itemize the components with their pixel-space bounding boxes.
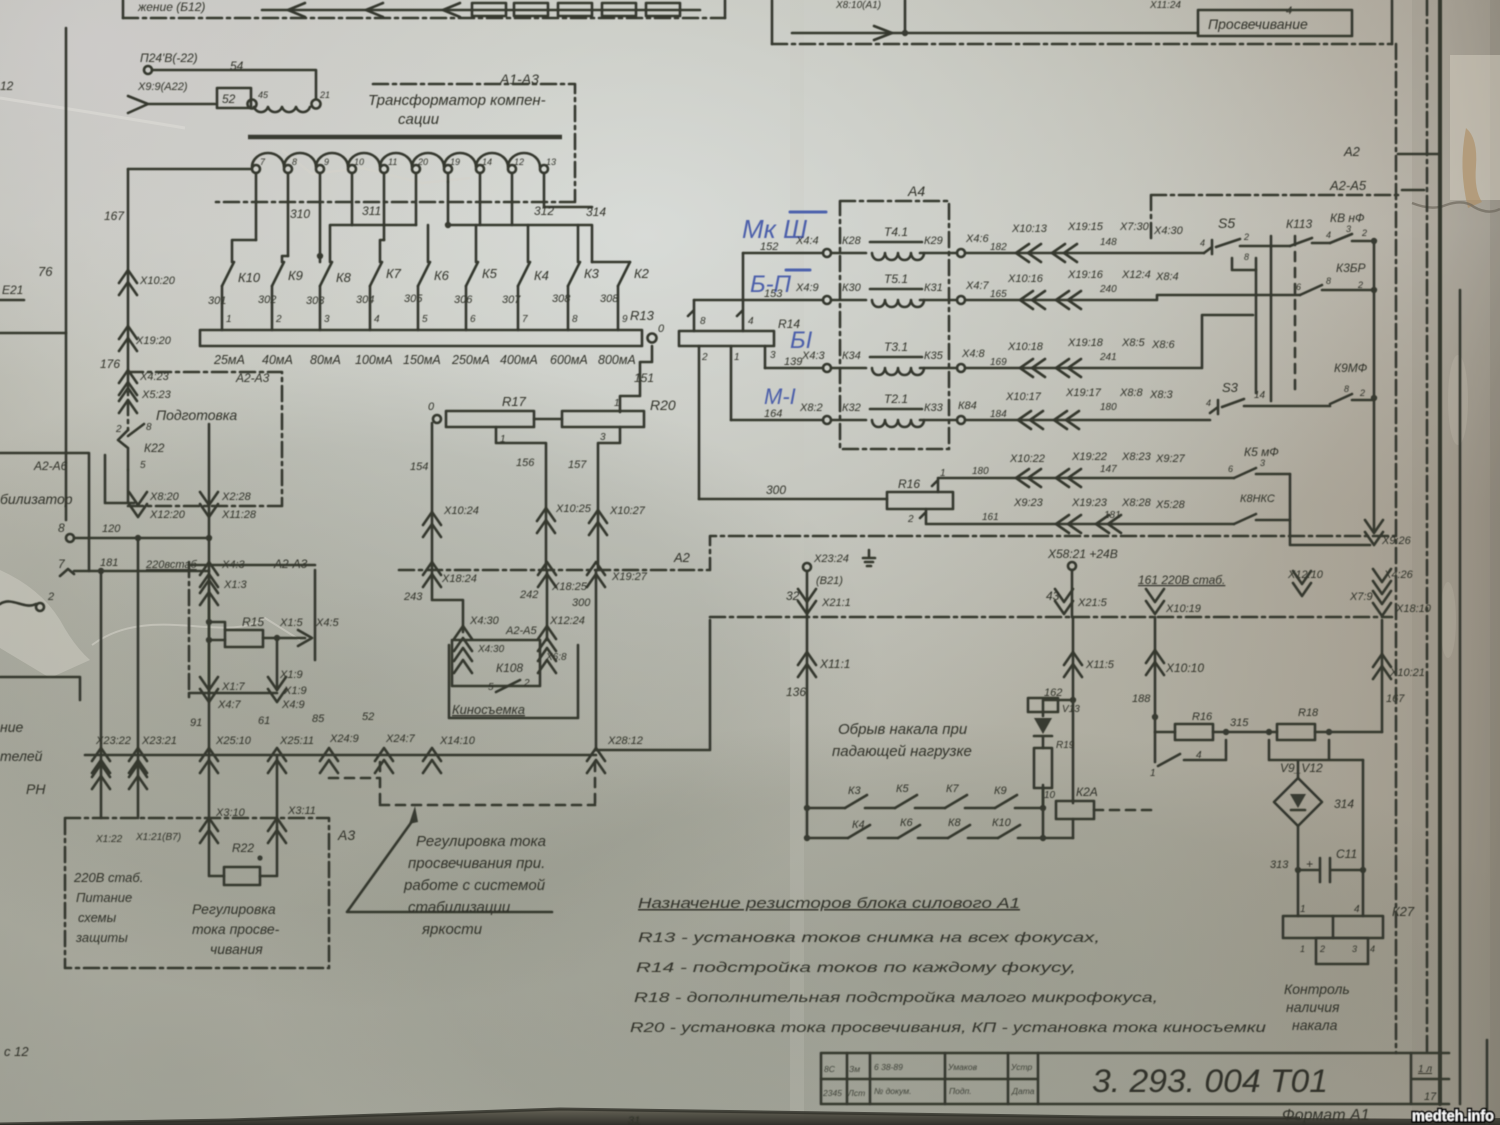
svg-text:Т4.1: Т4.1	[884, 225, 908, 239]
svg-text:Х19:23: Х19:23	[1071, 497, 1108, 509]
svg-text:А4: А4	[907, 183, 925, 199]
svg-text:52: 52	[362, 711, 374, 723]
svg-text:К5: К5	[896, 783, 909, 795]
svg-text:Х8:6: Х8:6	[1151, 339, 1176, 351]
svg-text:К30: К30	[842, 282, 862, 294]
svg-text:Х10:20: Х10:20	[139, 275, 176, 287]
svg-text:Х23:24: Х23:24	[813, 553, 849, 565]
svg-text:R19: R19	[1056, 740, 1075, 751]
svg-text:Х7:9: Х7:9	[1349, 591, 1373, 603]
svg-text:8: 8	[1244, 252, 1249, 262]
svg-text:V13: V13	[1062, 704, 1080, 715]
svg-text:14: 14	[482, 157, 492, 167]
svg-text:Х18:25: Х18:25	[551, 581, 588, 593]
svg-text:2: 2	[1243, 232, 1249, 242]
svg-text:8: 8	[292, 157, 297, 167]
svg-text:А2: А2	[1343, 144, 1361, 159]
svg-text:0: 0	[428, 401, 435, 413]
svg-text:5: 5	[140, 460, 146, 471]
svg-text:Х11:5: Х11:5	[1085, 659, 1115, 671]
svg-text:Х10:27: Х10:27	[609, 505, 646, 517]
svg-text:8: 8	[572, 314, 578, 325]
svg-text:Х8:10(А1): Х8:10(А1)	[835, 0, 881, 11]
svg-text:схемы: схемы	[78, 910, 117, 925]
svg-text:156: 156	[516, 457, 535, 469]
svg-text:8: 8	[58, 521, 65, 535]
svg-text:1: 1	[226, 314, 232, 325]
svg-text:К113: К113	[1286, 217, 1313, 231]
svg-text:4: 4	[1354, 904, 1360, 915]
svg-text:R13: R13	[630, 308, 655, 323]
svg-text:600мА: 600мА	[550, 353, 588, 367]
svg-text:Х1:7: Х1:7	[221, 681, 246, 693]
svg-text:31: 31	[628, 1115, 640, 1125]
svg-text:Питание: Питание	[76, 890, 132, 905]
svg-text:К3БР: К3БР	[1336, 261, 1366, 275]
svg-text:Х4:30: Х4:30	[1153, 225, 1184, 237]
svg-text:165: 165	[990, 289, 1007, 300]
svg-text:Х8:23: Х8:23	[1121, 451, 1152, 463]
svg-text:билизатор: билизатор	[0, 491, 73, 507]
svg-text:Х23:22: Х23:22	[95, 735, 131, 747]
svg-text:Х10:24: Х10:24	[443, 505, 479, 517]
svg-text:17: 17	[1424, 1091, 1437, 1103]
svg-text:Х1:5: Х1:5	[279, 617, 304, 629]
svg-text:Х8:5: Х8:5	[1121, 337, 1146, 349]
svg-text:Х11:24: Х11:24	[1149, 0, 1181, 11]
svg-text:4: 4	[1200, 238, 1205, 248]
svg-text:80мА: 80мА	[310, 353, 341, 367]
svg-text:К3: К3	[584, 266, 600, 281]
svg-text:V9_V12: V9_V12	[1280, 761, 1323, 775]
svg-text:3: 3	[1260, 458, 1265, 468]
svg-text:43: 43	[1046, 589, 1060, 603]
svg-text:К6: К6	[434, 268, 450, 283]
svg-text:Просвечивание: Просвечивание	[1208, 16, 1308, 32]
svg-text:157: 157	[568, 459, 587, 471]
svg-text:К108: К108	[496, 661, 523, 675]
svg-text:152: 152	[760, 241, 778, 253]
svg-text:Х19:17: Х19:17	[1065, 387, 1102, 399]
svg-text:К10: К10	[238, 270, 261, 285]
svg-text:3: 3	[1352, 944, 1357, 954]
svg-text:8С: 8С	[824, 1064, 836, 1074]
svg-text:4: 4	[748, 316, 754, 327]
svg-text:13: 13	[546, 157, 556, 167]
svg-text:Х11:1: Х11:1	[819, 657, 850, 671]
svg-text:П24'В(-22): П24'В(-22)	[140, 51, 198, 65]
svg-text:S3: S3	[1222, 380, 1239, 395]
svg-text:181: 181	[100, 557, 118, 569]
svg-text:241: 241	[1099, 352, 1117, 363]
svg-text:Х9:9(А22): Х9:9(А22)	[137, 81, 188, 93]
svg-text:150мА: 150мА	[403, 353, 441, 367]
svg-text:2: 2	[275, 314, 282, 325]
svg-text:167: 167	[104, 209, 125, 223]
svg-text:303: 303	[306, 295, 325, 307]
svg-text:Х10:22: Х10:22	[1009, 453, 1045, 465]
svg-text:2: 2	[1359, 388, 1365, 398]
svg-text:85: 85	[312, 713, 325, 725]
svg-text:Х1:9: Х1:9	[283, 685, 307, 697]
svg-text:8: 8	[700, 316, 706, 327]
svg-text:Х24:7: Х24:7	[385, 733, 416, 745]
svg-text:76: 76	[38, 264, 53, 279]
svg-text:2: 2	[115, 424, 122, 435]
svg-text:Регулировка тока: Регулировка тока	[416, 833, 546, 850]
svg-text:телей: телей	[0, 748, 43, 764]
svg-text:3: 3	[770, 350, 776, 361]
svg-text:А2-А5: А2-А5	[1329, 178, 1367, 193]
svg-text:154: 154	[410, 461, 428, 473]
svg-text:314: 314	[1334, 797, 1354, 811]
svg-text:Х19:22: Х19:22	[1071, 451, 1107, 463]
svg-text:2: 2	[1361, 228, 1367, 238]
svg-text:К9МФ: К9МФ	[1334, 361, 1368, 375]
svg-text:К34: К34	[842, 350, 861, 362]
svg-text:220В стаб.: 220В стаб.	[73, 870, 143, 885]
svg-text:К6: К6	[900, 817, 913, 829]
svg-text:182: 182	[990, 242, 1007, 253]
svg-text:313: 313	[1270, 859, 1289, 871]
svg-text:Обрыв накала при: Обрыв накала при	[838, 721, 968, 738]
svg-text:8: 8	[1326, 276, 1331, 286]
svg-text:100мА: 100мА	[355, 353, 393, 367]
svg-text:К2А: К2А	[1076, 785, 1098, 799]
svg-text:К5 мФ: К5 мФ	[1244, 445, 1279, 459]
svg-text:1 л: 1 л	[1418, 1064, 1432, 1075]
svg-text:25мА: 25мА	[213, 353, 245, 367]
svg-text:К32: К32	[842, 402, 861, 414]
svg-text:К8НКС: К8НКС	[1240, 493, 1275, 505]
svg-text:139: 139	[784, 356, 802, 368]
svg-text:Х4:7: Х4:7	[217, 699, 242, 711]
svg-text:Х4:30: Х4:30	[477, 644, 505, 655]
svg-text:R20 - установка тока просвеч: R20 - установка тока просвечивания, КП -…	[630, 1019, 1266, 1035]
svg-text:310: 310	[290, 207, 310, 221]
svg-text:тока просве-: тока просве-	[192, 921, 280, 937]
svg-text:181: 181	[1104, 510, 1121, 521]
svg-text:Х8:28: Х8:28	[1121, 497, 1152, 509]
svg-text:1: 1	[1300, 944, 1305, 954]
svg-text:К3: К3	[848, 785, 861, 797]
svg-text:Х14:10: Х14:10	[439, 735, 476, 747]
svg-text:40мА: 40мА	[262, 353, 293, 367]
svg-text:Х10:17: Х10:17	[1005, 391, 1042, 403]
svg-text:10: 10	[354, 157, 364, 167]
svg-text:91: 91	[190, 717, 202, 729]
svg-text:R18: R18	[1298, 707, 1319, 719]
svg-text:1: 1	[734, 352, 740, 363]
svg-text:Х18:24: Х18:24	[441, 573, 477, 585]
svg-text:314: 314	[586, 205, 606, 219]
svg-text:Х4:9: Х4:9	[795, 282, 819, 294]
svg-text:Х10:21: Х10:21	[1389, 667, 1425, 679]
svg-text:11: 11	[388, 157, 397, 167]
svg-text:311: 311	[362, 204, 381, 218]
svg-text:315: 315	[1230, 717, 1249, 729]
svg-text:Зм: Зм	[849, 1064, 860, 1074]
svg-text:К2: К2	[634, 266, 650, 281]
svg-text:Х19:16: Х19:16	[1067, 269, 1104, 281]
svg-text:1: 1	[940, 468, 946, 479]
svg-text:К29: К29	[924, 235, 943, 247]
svg-text:Х28:12: Х28:12	[607, 735, 643, 747]
svg-text:5: 5	[422, 314, 428, 325]
svg-text:Х8:8: Х8:8	[1119, 387, 1144, 399]
svg-text:250мА: 250мА	[451, 353, 490, 367]
svg-text:161: 161	[982, 512, 999, 523]
svg-text:308: 308	[600, 293, 619, 305]
svg-text:2: 2	[1319, 944, 1325, 954]
svg-text:Х10:25: Х10:25	[555, 503, 592, 515]
svg-text:Х9:27: Х9:27	[1155, 453, 1186, 465]
svg-text:188: 188	[1132, 693, 1151, 705]
svg-text:19: 19	[450, 157, 460, 167]
svg-text:Х9:23: Х9:23	[1013, 497, 1044, 509]
svg-text:(В21): (В21)	[816, 575, 843, 587]
svg-text:К31: К31	[924, 282, 943, 294]
svg-text:164: 164	[764, 408, 782, 420]
svg-text:К10: К10	[992, 817, 1012, 829]
svg-text:Х1:3: Х1:3	[223, 579, 248, 591]
svg-text:Х5:23: Х5:23	[141, 389, 172, 401]
svg-text:21: 21	[319, 90, 330, 100]
svg-text:242: 242	[519, 589, 538, 601]
svg-text:Х10:18: Х10:18	[1007, 341, 1044, 353]
svg-text:Киносъемка: Киносъемка	[452, 702, 525, 717]
svg-text:К9: К9	[288, 268, 303, 283]
svg-text:К7: К7	[386, 266, 402, 281]
svg-text:К28: К28	[842, 235, 862, 247]
svg-text:К8: К8	[336, 270, 352, 285]
svg-text:R15: R15	[242, 615, 264, 629]
svg-text:Х6:8: Х6:8	[545, 652, 567, 663]
svg-text:Т2.1: Т2.1	[884, 392, 908, 406]
svg-text:1: 1	[500, 434, 506, 445]
svg-text:Регулировка: Регулировка	[192, 901, 276, 917]
svg-text:К35: К35	[924, 350, 944, 362]
svg-text:7: 7	[522, 314, 528, 325]
svg-text:Х8:2: Х8:2	[799, 402, 823, 414]
svg-text:20: 20	[417, 157, 428, 167]
svg-text:Х8:3: Х8:3	[1149, 389, 1174, 401]
svg-text:Х19:18: Х19:18	[1067, 337, 1104, 349]
svg-text:защиты: защиты	[75, 930, 128, 945]
svg-text:Х1:9: Х1:9	[279, 669, 303, 681]
svg-text:просвечивания при.: просвечивания при.	[408, 855, 545, 872]
svg-text:К4: К4	[852, 819, 865, 831]
svg-text:148: 148	[1100, 237, 1117, 248]
svg-text:К33: К33	[924, 402, 944, 414]
svg-text:45: 45	[258, 90, 269, 100]
svg-text:R13 - установка токов снимка: R13 - установка токов снимка на всех фок…	[638, 929, 1100, 945]
svg-text:4: 4	[1370, 944, 1375, 954]
svg-text:3. 293. 004 Т01: 3. 293. 004 Т01	[1092, 1063, 1328, 1099]
svg-text:А2-А3: А2-А3	[235, 371, 270, 385]
svg-text:6: 6	[1228, 464, 1233, 474]
svg-text:падающей нагрузке: падающей нагрузке	[832, 743, 972, 760]
svg-text:R16: R16	[1192, 711, 1213, 723]
svg-text:К4: К4	[534, 268, 549, 283]
svg-text:Подп.: Подп.	[949, 1086, 972, 1096]
svg-text:0: 0	[658, 323, 665, 335]
svg-text:К5: К5	[482, 266, 498, 281]
svg-text:302: 302	[258, 294, 276, 306]
svg-text:2: 2	[1357, 280, 1363, 290]
svg-text:сации: сации	[398, 111, 440, 128]
svg-text:4: 4	[1326, 230, 1331, 240]
svg-text:с 12: с 12	[4, 1044, 29, 1059]
svg-text:400мА: 400мА	[500, 353, 538, 367]
svg-text:R22: R22	[232, 841, 254, 855]
svg-text:Х4:30: Х4:30	[469, 615, 500, 627]
svg-text:136: 136	[786, 685, 806, 699]
svg-text:КВ нФ: КВ нФ	[1330, 211, 1365, 225]
svg-text:180: 180	[1100, 402, 1117, 413]
svg-text:Х19:15: Х19:15	[1067, 221, 1104, 233]
svg-text:Т3.1: Т3.1	[884, 340, 908, 354]
svg-text:Х1:21(В7): Х1:21(В7)	[135, 832, 181, 843]
svg-text:Х21:5: Х21:5	[1077, 597, 1108, 609]
svg-text:4: 4	[1196, 750, 1202, 761]
svg-text:Формат А1: Формат А1	[1282, 1107, 1370, 1124]
svg-text:3: 3	[324, 314, 330, 325]
svg-text:R17: R17	[502, 394, 527, 409]
svg-text:Х10:19: Х10:19	[1165, 603, 1201, 615]
svg-text:Х11:28: Х11:28	[221, 509, 257, 521]
svg-text:Х4:8: Х4:8	[961, 348, 986, 360]
svg-text:А2: А2	[673, 550, 691, 565]
svg-text:Х25:11: Х25:11	[279, 735, 314, 747]
svg-text:К8: К8	[948, 817, 961, 829]
svg-text:Т5.1: Т5.1	[884, 272, 908, 286]
svg-text:Х25:10: Х25:10	[215, 735, 252, 747]
svg-text:2: 2	[701, 352, 708, 363]
svg-text:Х58:21 +24В: Х58:21 +24В	[1047, 547, 1118, 561]
svg-text:9: 9	[622, 314, 628, 325]
svg-text:R14 - подстройка токов по к: R14 - подстройка токов по каждому фокусу…	[636, 959, 1076, 975]
svg-text:8: 8	[1344, 384, 1349, 394]
svg-text:Х8:4: Х8:4	[1155, 271, 1179, 283]
svg-text:301: 301	[208, 295, 226, 307]
svg-text:300: 300	[572, 597, 591, 609]
svg-text:Дата: Дата	[1011, 1086, 1035, 1096]
svg-text:184: 184	[990, 409, 1007, 420]
svg-text:Трансформатор компен-: Трансформатор компен-	[368, 92, 546, 109]
svg-text:R16: R16	[898, 477, 920, 491]
svg-text:Лст: Лст	[847, 1088, 865, 1098]
svg-text:61: 61	[258, 715, 270, 727]
svg-text:1: 1	[1300, 904, 1306, 915]
svg-text:Х12:20: Х12:20	[149, 509, 186, 521]
svg-text:153: 153	[764, 288, 783, 300]
svg-text:Контроль: Контроль	[1284, 981, 1350, 997]
svg-text:305: 305	[404, 293, 423, 305]
svg-text:жение (Б12): жение (Б12)	[137, 0, 205, 14]
svg-text:Х4:5: Х4:5	[315, 617, 340, 629]
svg-text:Х4:6: Х4:6	[965, 233, 990, 245]
svg-text:R20: R20	[650, 397, 676, 413]
svg-text:Подготовка: Подготовка	[156, 407, 237, 423]
svg-text:Х2:28: Х2:28	[221, 491, 252, 503]
svg-text:стабилизации: стабилизации	[408, 899, 511, 916]
svg-text:R18 - дополнительная подстрой: R18 - дополнительная подстройка малого м…	[634, 989, 1158, 1005]
svg-text:А2-А6: А2-А6	[33, 459, 68, 473]
svg-text:Х12:4: Х12:4	[1121, 269, 1151, 281]
svg-text:312: 312	[534, 204, 554, 218]
svg-text:К84: К84	[958, 400, 977, 412]
svg-text:10: 10	[1044, 790, 1056, 801]
svg-text:800мА: 800мА	[598, 353, 636, 367]
svg-text:А2-А5: А2-А5	[505, 625, 537, 637]
svg-text:176: 176	[100, 357, 120, 371]
svg-text:Х4:9: Х4:9	[281, 699, 305, 711]
svg-text:120: 120	[102, 523, 121, 535]
svg-text:243: 243	[403, 591, 423, 603]
svg-text:Х7:30: Х7:30	[1119, 221, 1150, 233]
svg-text:Х4:3: Х4:3	[801, 350, 826, 362]
svg-text:чивания: чивания	[210, 941, 263, 957]
svg-text:накала: накала	[1292, 1017, 1338, 1033]
svg-text:6: 6	[1296, 282, 1301, 292]
svg-text:работе с системой: работе с системой	[403, 877, 546, 894]
svg-text:9: 9	[324, 157, 329, 167]
svg-text:300: 300	[766, 483, 786, 497]
svg-text:Х10:16: Х10:16	[1007, 273, 1044, 285]
svg-text:Х19:20: Х19:20	[135, 335, 172, 347]
svg-text:Х4:4: Х4:4	[795, 235, 819, 247]
svg-text:6 38-89: 6 38-89	[874, 1062, 903, 1072]
svg-text:+: +	[1306, 857, 1313, 871]
svg-text:А3: А3	[337, 827, 355, 843]
svg-text:яркости: яркости	[421, 921, 483, 938]
svg-text:наличия: наличия	[1286, 999, 1340, 1015]
svg-text:К22: К22	[144, 441, 165, 455]
svg-text:4: 4	[374, 314, 380, 325]
svg-text:Х19:27: Х19:27	[611, 571, 648, 583]
svg-text:ние: ние	[0, 719, 23, 735]
svg-text:1: 1	[614, 398, 620, 409]
svg-text:52: 52	[222, 92, 236, 106]
svg-text:S5: S5	[1218, 215, 1235, 231]
svg-text:Умаков: Умаков	[947, 1062, 978, 1072]
svg-text:Устр: Устр	[1010, 1062, 1032, 1072]
svg-text:180: 180	[972, 466, 989, 477]
svg-text:Х1:22: Х1:22	[95, 834, 123, 845]
svg-text:medteh.info: medteh.info	[1412, 1108, 1494, 1125]
svg-text:169: 169	[990, 357, 1007, 368]
svg-text:Х5:28: Х5:28	[1155, 499, 1186, 511]
svg-text:Назначение резисторов блока: Назначение резисторов блока силового А1	[638, 895, 1020, 912]
svg-text:С11: С11	[1336, 847, 1357, 861]
svg-text:3: 3	[1346, 224, 1351, 234]
svg-text:5: 5	[488, 682, 494, 693]
svg-text:Х10:10: Х10:10	[1165, 661, 1204, 675]
svg-text:2: 2	[523, 678, 530, 689]
svg-text:РН: РН	[26, 781, 46, 797]
svg-text:6: 6	[470, 314, 476, 325]
svg-text:Х21:1: Х21:1	[821, 597, 851, 609]
svg-text:1: 1	[1150, 768, 1156, 779]
svg-text:12: 12	[0, 79, 14, 93]
svg-text:2: 2	[47, 591, 54, 603]
svg-text:161 220В стаб.: 161 220В стаб.	[1138, 573, 1225, 587]
svg-text:8: 8	[146, 422, 152, 433]
svg-text:304: 304	[356, 294, 374, 306]
svg-text:М-Ӏ: М-Ӏ	[764, 384, 796, 409]
svg-text:К9: К9	[994, 785, 1007, 797]
